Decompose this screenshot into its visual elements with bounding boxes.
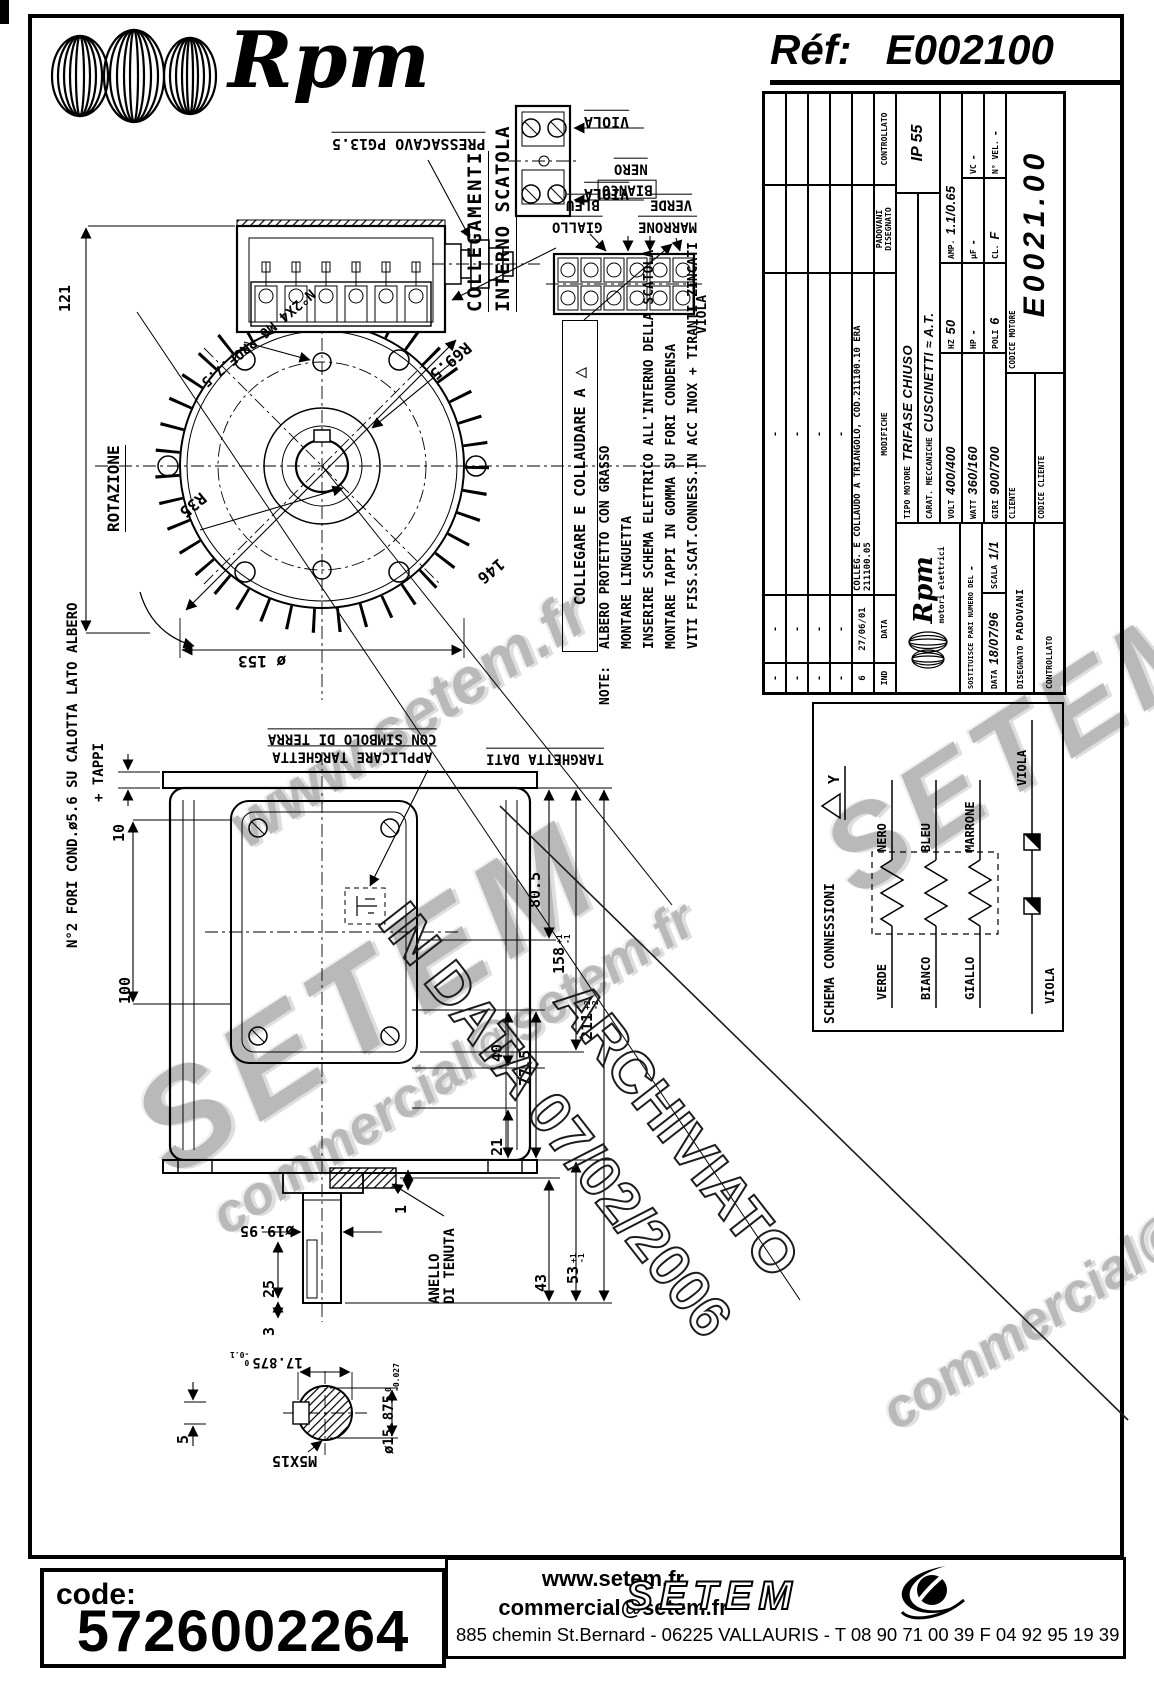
giallo-label: GIALLO <box>963 957 977 1000</box>
tb-uf: µF- <box>962 178 984 263</box>
tb-logo-subtext: motori elettrici <box>937 546 946 623</box>
dim-5: 5 <box>176 1435 192 1444</box>
tb-watt: WATT360/160 <box>962 353 984 523</box>
note-1: ALBERO PROTETTO CON GRASSO <box>598 446 613 650</box>
code-box: code: 5726002264 <box>40 1568 446 1668</box>
rev-cell <box>852 93 874 185</box>
title-block: - - - - - - - - - - - - 6 27/06/01 COLLE… <box>762 91 1066 695</box>
tb-scala: SCALA1/1 <box>982 523 1006 593</box>
rev-cell <box>808 93 830 185</box>
note-2: MONTARE LINGUETTA <box>620 516 635 649</box>
note-line: MONTARE LINGUETTA <box>620 243 635 705</box>
verde-label: VERDE <box>875 964 889 1000</box>
dim-153: ø 153 <box>238 652 286 669</box>
m5x15-label: M5X15 <box>272 1452 317 1468</box>
rev-cell: - <box>764 663 786 693</box>
footer-address: 885 chemin St.Bernard - 06225 VALLAURIS … <box>456 1624 1116 1646</box>
rev-cell <box>764 185 786 273</box>
rev-cell: - <box>830 595 852 663</box>
reference-number: Réf: E002100 <box>770 26 1122 85</box>
tb-logo-cell: Rpm motori elettrici <box>896 523 960 693</box>
tb-ip-rating: IP 55 <box>896 93 940 193</box>
rev-cell: - <box>786 663 808 693</box>
rev-cell <box>830 93 852 185</box>
bianco-label: BIANCO <box>919 957 933 1000</box>
schema-title: SCHEMA CONNESSIONI <box>823 883 838 1024</box>
rev-cell: - <box>808 663 830 693</box>
tappi-label: + TAPPI <box>92 743 107 802</box>
dim-3: 3 <box>262 1327 278 1336</box>
scanned-technical-drawing: { "header": { "ref_label": "Réf:", "ref_… <box>0 0 1154 1683</box>
note-line: INSERIRE SCHEMA ELETTRICO ALL'INTERNO DE… <box>642 243 657 705</box>
rev-index: 6 <box>852 663 874 693</box>
rev-cell: - <box>808 595 830 663</box>
viola-label-left: VIOLA <box>1043 967 1057 1004</box>
targhetta-dati-label: TARGHETTA DATI <box>486 748 604 766</box>
pressacavo-label: PRESSACAVO PG13.5 <box>332 132 486 151</box>
anello-line-2: DI TENUTA <box>443 1228 458 1304</box>
dim-121: 121 <box>58 285 74 312</box>
viola-wire-label-1: VIOLA <box>584 110 629 129</box>
dim-10: 10 <box>112 824 128 842</box>
scan-corner-mark <box>0 0 9 24</box>
bianco-wire-label: BIANCO <box>598 180 657 199</box>
fori-condensa-label: N°2 FORI COND.ø5.6 SU CALOTTA LATO ALBER… <box>66 602 81 948</box>
rpm-logo-text: Rpm <box>228 22 430 100</box>
rev-cell: - <box>830 663 852 693</box>
rev-date: 27/06/01 <box>852 595 874 663</box>
tb-cliente: CLIENTE <box>1006 373 1035 523</box>
marrone-wire-label: MARRONE <box>638 216 697 234</box>
rev-cell: - <box>786 595 808 663</box>
tb-hp: HP- <box>962 263 984 353</box>
rev-cell: - <box>764 273 786 595</box>
notes-block: NOTE:ALBERO PROTETTO CON GRASSO MONTARE … <box>598 243 730 705</box>
rev-description: COLLEG. E COLLAUDO A TRIANGOLO, COD.2111… <box>852 273 874 595</box>
note-3: INSERIRE SCHEMA ELETTRICO ALL'INTERNO DE… <box>642 250 657 649</box>
tb-codice-cliente: CODICE CLIENTE <box>1035 373 1064 523</box>
rev-cell: - <box>764 595 786 663</box>
rev-cell: - <box>830 273 852 595</box>
dim-25: 25 <box>262 1280 278 1298</box>
note-label: NOTE: <box>598 649 613 705</box>
tb-carat-meccaniche: CARAT. MECCANICHECUSCINETTI ≈ A.T. <box>918 193 940 523</box>
ref-label: Réf: <box>770 26 852 74</box>
note-4: MONTARE TAPPI IN GOMMA SU FORI CONDENSA <box>664 344 679 649</box>
rev-cell <box>786 185 808 273</box>
rev-cell <box>764 93 786 185</box>
tb-codice-motore: CODICE MOTORE E0021.00 <box>1006 93 1064 373</box>
giallo-wire-label: GIALLO <box>552 216 603 234</box>
tb-logo-coils <box>906 630 950 670</box>
verde-wire-label: VERDE <box>650 194 692 212</box>
tb-volt: VOLT400/400 <box>940 353 962 523</box>
collegamenti-label-1: COLLEGAMENTI <box>466 151 489 312</box>
tb-poli: POLI6 <box>984 263 1006 353</box>
rev-header-modifiche: MODIFICHE <box>874 273 896 595</box>
setem-logo-text: SETEM <box>626 1574 799 1619</box>
footer-bar: www.setem.fr commercial@setem.fr 885 che… <box>445 1557 1126 1659</box>
tb-giri: GIRI900/700 <box>984 353 1006 523</box>
tb-hz: HZ50 <box>940 263 962 353</box>
nero-wire-label: NERO <box>614 158 648 176</box>
tb-tipo-motore: TIPO MOTORETRIFASE CHIUSO <box>896 193 918 523</box>
setem-logo-swoosh <box>880 1560 1050 1624</box>
rev-cell <box>830 185 852 273</box>
rev-header-data: DATA <box>874 595 896 663</box>
ref-value: E002100 <box>886 26 1054 74</box>
anello-di-tenuta-label: ANELLO DI TENUTA <box>428 1228 457 1304</box>
dim-1: 1 <box>394 1205 410 1214</box>
rotazione-label: ROTAZIONE <box>106 445 126 532</box>
tb-cl: CL.F <box>984 178 1006 263</box>
delta-symbol: △ <box>569 367 591 378</box>
dim-53: 53+1-1 <box>566 1253 586 1284</box>
anello-line-1: ANELLO <box>428 1228 443 1304</box>
rev-cell <box>786 93 808 185</box>
tb-nvel: N° VEL.- <box>984 93 1006 178</box>
tb-sostituisce: SOSTITUISCE PARI NUMERO DEL- <box>960 523 982 693</box>
rev-header-controllato: CONTROLLATO <box>874 93 896 185</box>
code-value: 5726002264 <box>44 1598 442 1665</box>
collaudo-text: COLLEGARE E COLLAUDARE A <box>571 388 589 605</box>
tb-logo-text: Rpm <box>911 546 937 623</box>
note-line: VITI FISS.SCAT.CONNESS.IN ACC INOX + TIR… <box>686 243 701 705</box>
note-line: MONTARE TAPPI IN GOMMA SU FORI CONDENSA <box>664 243 679 705</box>
tb-vc: VC- <box>962 93 984 178</box>
collegamenti-label-2: INTERNO SCATOLA <box>494 125 517 312</box>
dim-21: 21 <box>490 1138 506 1156</box>
rev-cell: - <box>786 273 808 595</box>
dim-43: 43 <box>534 1274 550 1292</box>
dim-15-875: ø15.8750-0.027 <box>382 1363 401 1454</box>
rev-header-ind: IND <box>874 663 896 693</box>
rev-cell <box>808 185 830 273</box>
rev-cell: - <box>808 273 830 595</box>
bleu-wire-label: BLEU <box>566 194 600 212</box>
dim-17-875: 17.8750-0.1 <box>230 1350 303 1369</box>
rev-header-disegnato: PADOVANIDISEGNATO <box>874 185 896 273</box>
note-5: VITI FISS.SCAT.CONNESS.IN ACC INOX + TIR… <box>686 242 701 649</box>
rev-cell <box>852 185 874 273</box>
tb-amp: AMP.1.1/0.65 <box>940 93 962 263</box>
dim-100: 100 <box>118 977 134 1004</box>
